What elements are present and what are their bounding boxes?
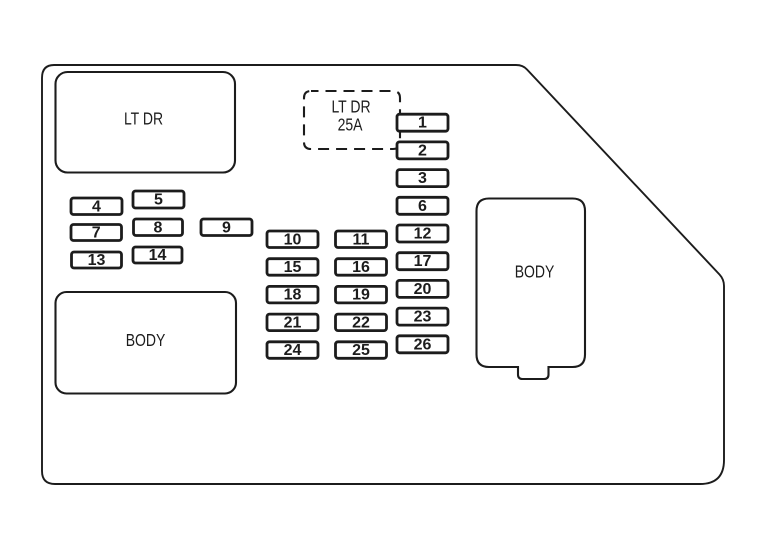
svg-text:25A: 25A: [338, 116, 363, 135]
svg-text:BODY: BODY: [126, 332, 166, 351]
svg-text:LT DR: LT DR: [124, 110, 163, 129]
svg-text:7: 7: [92, 225, 101, 242]
svg-text:25: 25: [352, 342, 370, 359]
svg-text:19: 19: [352, 287, 370, 304]
svg-text:26: 26: [414, 336, 432, 353]
svg-text:13: 13: [88, 252, 106, 269]
svg-text:23: 23: [414, 309, 432, 326]
svg-text:18: 18: [284, 287, 302, 304]
svg-text:16: 16: [352, 259, 370, 276]
svg-text:21: 21: [284, 314, 302, 331]
svg-text:17: 17: [414, 253, 432, 270]
svg-text:14: 14: [149, 247, 167, 264]
svg-text:10: 10: [284, 231, 302, 248]
svg-text:20: 20: [414, 281, 432, 298]
svg-text:22: 22: [352, 314, 370, 331]
svg-text:24: 24: [284, 342, 302, 359]
svg-text:15: 15: [284, 259, 302, 276]
svg-text:3: 3: [418, 170, 427, 187]
svg-text:11: 11: [353, 231, 370, 248]
svg-text:2: 2: [418, 142, 427, 159]
svg-text:9: 9: [222, 219, 231, 236]
svg-text:1: 1: [418, 115, 427, 132]
svg-text:8: 8: [154, 219, 163, 236]
svg-text:12: 12: [414, 226, 432, 243]
svg-text:LT DR: LT DR: [331, 98, 370, 117]
svg-text:4: 4: [92, 198, 101, 215]
svg-text:BODY: BODY: [515, 263, 555, 282]
svg-text:6: 6: [418, 198, 427, 215]
svg-text:5: 5: [154, 192, 163, 209]
